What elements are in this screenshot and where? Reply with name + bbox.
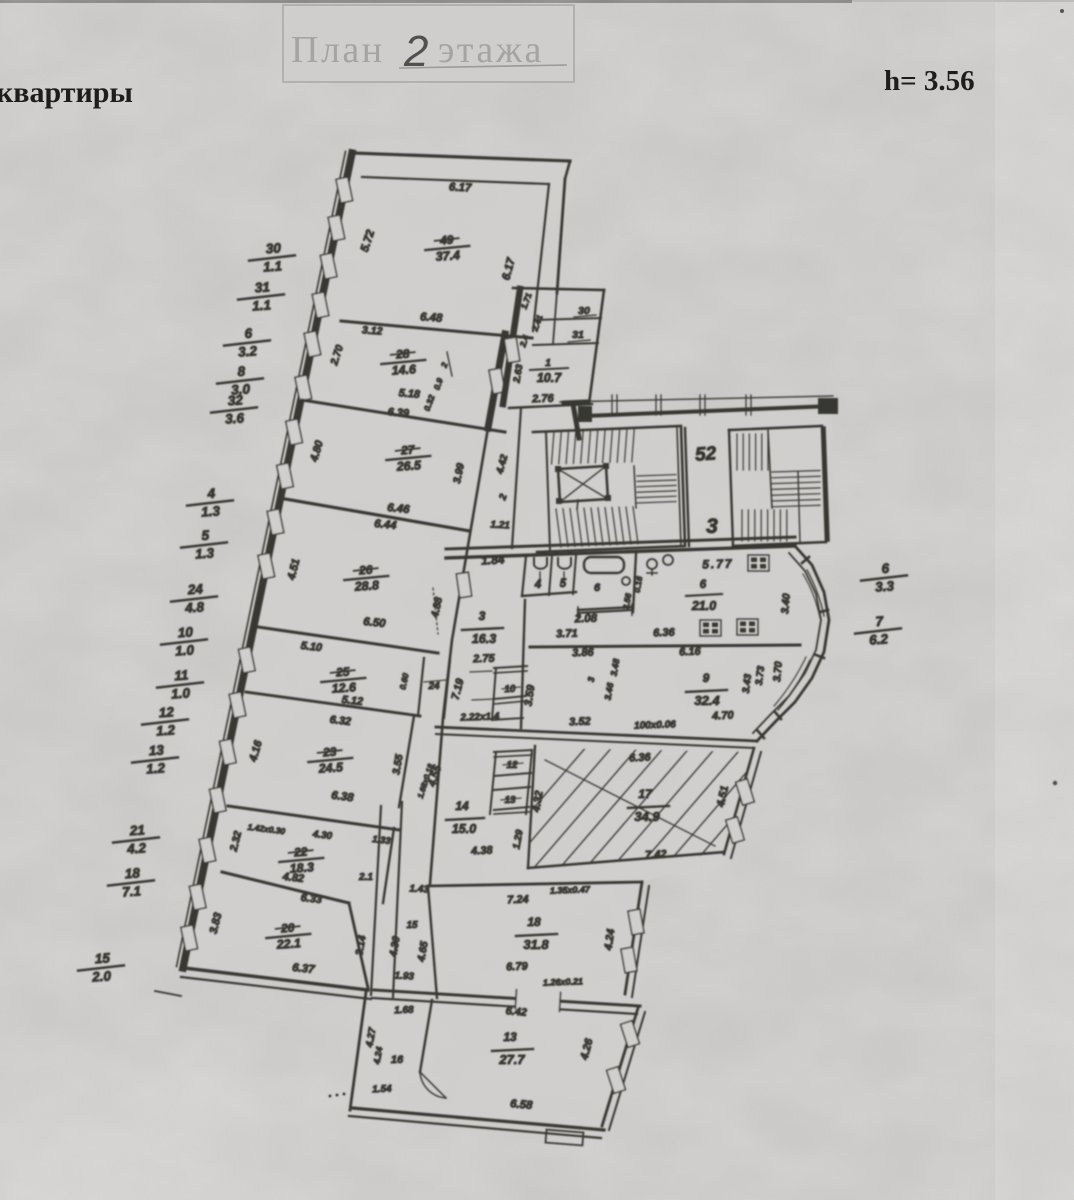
svg-text:5.18: 5.18 [398, 387, 421, 401]
svg-text:26.5: 26.5 [395, 458, 422, 474]
svg-text:24.5: 24.5 [317, 760, 344, 776]
svg-text:52: 52 [694, 443, 717, 465]
svg-text:1.33: 1.33 [371, 834, 391, 847]
svg-text:100х0.06: 100х0.06 [634, 719, 677, 731]
svg-text:13: 13 [148, 742, 165, 758]
svg-text:5.10: 5.10 [300, 640, 323, 654]
svg-text:1.54: 1.54 [372, 1084, 392, 1096]
svg-text:16: 16 [391, 1054, 404, 1066]
svg-text:12: 12 [506, 760, 518, 771]
svg-text:3.6: 3.6 [225, 410, 245, 426]
svg-text:6.16: 6.16 [679, 646, 702, 659]
svg-text:6.36: 6.36 [629, 751, 652, 764]
svg-text:3.3: 3.3 [875, 578, 895, 594]
svg-text:1: 1 [545, 358, 551, 369]
svg-text:3.40: 3.40 [779, 593, 793, 615]
svg-text:3.52: 3.52 [569, 716, 591, 729]
svg-text:13: 13 [504, 795, 516, 806]
svg-text:15: 15 [406, 920, 418, 931]
svg-text:10.7: 10.7 [537, 371, 562, 385]
svg-text:5: 5 [560, 578, 567, 590]
svg-text:6.37: 6.37 [292, 962, 316, 976]
svg-text:2.22х1.4: 2.22х1.4 [459, 711, 500, 723]
svg-text:1.1: 1.1 [263, 258, 283, 274]
svg-text:7.24: 7.24 [507, 894, 529, 907]
svg-text:1.35х0.47: 1.35х0.47 [550, 884, 591, 895]
svg-text:2.76: 2.76 [531, 393, 555, 406]
svg-text:2.1: 2.1 [358, 872, 373, 883]
svg-text:7.1: 7.1 [122, 883, 142, 899]
svg-text:4.82: 4.82 [281, 871, 305, 885]
svg-text:1.43: 1.43 [409, 884, 429, 896]
svg-text:6.32: 6.32 [329, 714, 352, 728]
svg-text:5.77: 5.77 [702, 556, 734, 571]
svg-text:24: 24 [186, 581, 204, 597]
svg-text:1.2: 1.2 [146, 760, 166, 776]
svg-text:11: 11 [174, 667, 189, 683]
svg-text:6: 6 [700, 579, 707, 591]
svg-text:14.6: 14.6 [391, 362, 417, 378]
svg-text:6.79: 6.79 [506, 961, 529, 974]
svg-text:10: 10 [177, 624, 194, 640]
svg-text:4: 4 [534, 579, 542, 591]
svg-text:2.75: 2.75 [472, 653, 496, 666]
svg-text:4.38: 4.38 [470, 844, 494, 857]
svg-text:2.0: 2.0 [91, 968, 112, 984]
svg-text:1.2: 1.2 [156, 722, 176, 738]
svg-text:4: 4 [206, 486, 216, 502]
svg-text:2.08: 2.08 [573, 613, 597, 626]
svg-text:6.44: 6.44 [374, 518, 398, 532]
svg-text:6.58: 6.58 [510, 1098, 534, 1112]
svg-text:32: 32 [227, 392, 244, 408]
svg-text:31.8: 31.8 [523, 937, 549, 952]
svg-text:1.93: 1.93 [394, 970, 415, 982]
svg-text:3.2: 3.2 [238, 343, 258, 359]
svg-text:3.12: 3.12 [362, 324, 383, 337]
svg-text:3: 3 [706, 515, 718, 538]
svg-text:3: 3 [479, 609, 486, 623]
svg-text:1.68: 1.68 [394, 1005, 414, 1017]
svg-text:квартиры: квартиры [0, 76, 133, 109]
svg-text:4.70: 4.70 [711, 709, 735, 722]
svg-text:1.0: 1.0 [171, 685, 191, 701]
svg-text:1.26х0.21: 1.26х0.21 [543, 976, 583, 987]
svg-text:3.86: 3.86 [572, 647, 595, 660]
svg-text:31: 31 [254, 279, 270, 295]
svg-text:План: План [291, 29, 385, 71]
svg-text:18: 18 [124, 865, 141, 881]
svg-text:h= 3.56: h= 3.56 [884, 65, 975, 97]
svg-text:21: 21 [128, 822, 145, 838]
svg-text:4.8: 4.8 [184, 599, 205, 615]
svg-text:3.71: 3.71 [556, 628, 578, 641]
svg-text:6.46: 6.46 [387, 502, 411, 516]
svg-text:7.42: 7.42 [645, 848, 667, 861]
svg-text:9: 9 [703, 671, 710, 685]
svg-text:6: 6 [594, 582, 601, 594]
svg-text:1.3: 1.3 [201, 503, 221, 519]
svg-text:12: 12 [158, 704, 175, 720]
svg-text:17: 17 [638, 787, 653, 801]
svg-text:3.70: 3.70 [771, 661, 785, 683]
svg-text:6.17: 6.17 [449, 181, 473, 194]
svg-text:1.21: 1.21 [490, 520, 510, 532]
svg-text:21.0: 21.0 [691, 599, 716, 613]
svg-text:6.42: 6.42 [505, 1005, 527, 1019]
svg-text:22.1: 22.1 [275, 936, 301, 952]
svg-text:15: 15 [94, 950, 111, 966]
svg-text:13: 13 [503, 1030, 517, 1044]
svg-text:6.36: 6.36 [653, 627, 676, 640]
svg-text:5.12: 5.12 [341, 694, 364, 708]
svg-text:37.4: 37.4 [435, 248, 460, 264]
svg-text:1.3: 1.3 [195, 545, 215, 561]
svg-text:27.7: 27.7 [498, 1052, 525, 1067]
svg-text:4.2: 4.2 [126, 840, 147, 856]
svg-text:14: 14 [455, 799, 469, 813]
svg-text:1.84: 1.84 [481, 552, 505, 567]
svg-text:1.1: 1.1 [252, 297, 272, 313]
svg-text:1.0: 1.0 [175, 642, 195, 658]
svg-text:32.4: 32.4 [694, 693, 720, 708]
svg-text:30: 30 [265, 240, 282, 256]
svg-text:18: 18 [527, 915, 541, 929]
svg-text:34.9: 34.9 [634, 809, 660, 824]
svg-text:28.8: 28.8 [353, 578, 379, 594]
svg-text:10: 10 [504, 684, 516, 696]
svg-text:15.0: 15.0 [452, 822, 476, 836]
svg-text:16.3: 16.3 [472, 632, 496, 646]
svg-text:6.48: 6.48 [420, 311, 444, 325]
svg-text:24: 24 [427, 681, 440, 692]
svg-text:этажа: этажа [438, 29, 544, 71]
svg-text:6.2: 6.2 [869, 631, 889, 647]
svg-text:31: 31 [572, 329, 584, 341]
svg-text:6.50: 6.50 [363, 616, 387, 630]
